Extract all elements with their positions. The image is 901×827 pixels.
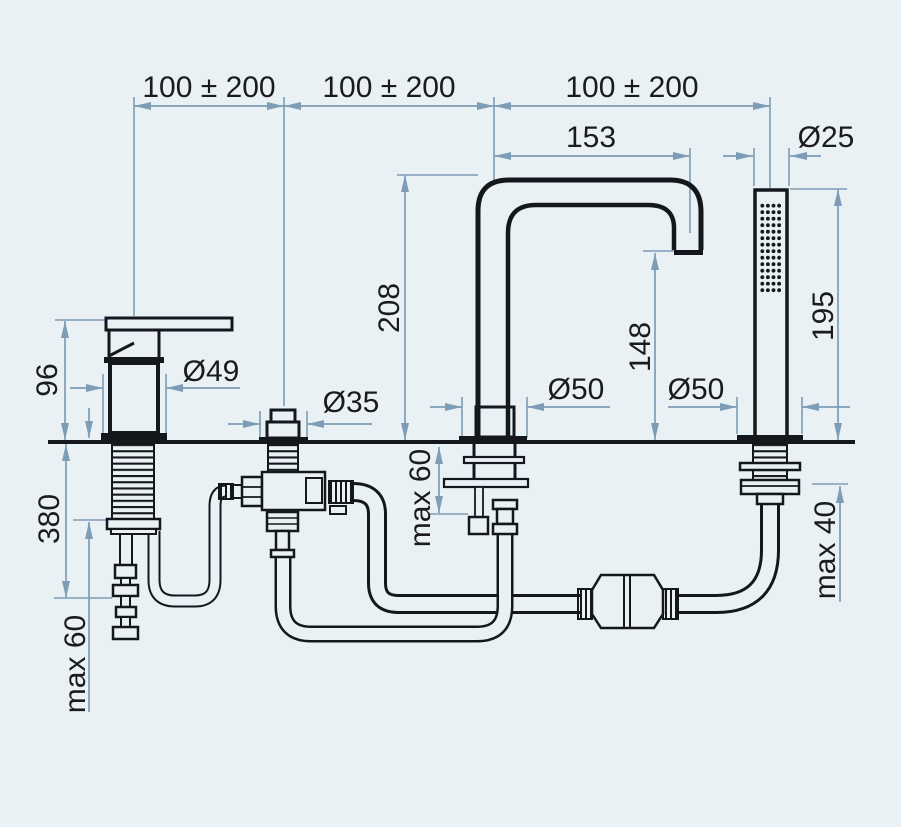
inline-connector [578, 575, 678, 628]
handshower-washer [740, 463, 800, 470]
mixer-body [110, 363, 158, 433]
handshower-spray-face [760, 203, 783, 294]
diverter-knob-base [267, 422, 299, 438]
mixer-lever [106, 318, 232, 330]
label-spacing-3: 100 ± 200 [565, 71, 698, 104]
mixer-mounting-nut [107, 519, 160, 529]
handshower [737, 190, 803, 504]
spout [444, 180, 703, 534]
diverter-knurled-connector [329, 481, 353, 503]
dimension-lines [54, 97, 850, 712]
label-spout-hole-diameter: Ø50 [548, 373, 605, 406]
label-under-deck-length: 380 [33, 494, 66, 544]
deck-line [48, 440, 855, 444]
installation-diagram: 100 ± 200 100 ± 200 100 ± 200 153 Ø25 20… [0, 0, 901, 827]
spout-bracket-bar-1 [464, 457, 524, 463]
spout-bracket-bar-2 [444, 479, 528, 487]
spout-tail-nut-2 [493, 524, 517, 534]
label-handshower-hole-diameter: Ø50 [668, 373, 725, 406]
mixer-fitting-1 [115, 565, 136, 578]
label-spout-outlet-height: 148 [624, 322, 657, 372]
handshower-mounting-nut [741, 480, 799, 494]
label-mixer-diameter: Ø49 [183, 355, 240, 388]
label-handshower-height: 195 [807, 291, 840, 341]
mixer-fitting-2 [113, 585, 138, 596]
label-max60-left: max 60 [59, 615, 92, 713]
spout-stud [475, 487, 483, 517]
label-spout-reach: 153 [566, 121, 616, 154]
spout-stud-nut [469, 517, 488, 534]
label-diverter-diameter: Ø35 [323, 386, 380, 419]
diverter [219, 410, 353, 557]
label-spout-height: 208 [373, 283, 406, 333]
label-spacing-1: 100 ± 200 [142, 71, 275, 104]
label-mixer-height: 96 [31, 363, 64, 396]
label-spacing-2: 100 ± 200 [322, 71, 455, 104]
diverter-bottom-band [271, 550, 294, 557]
diverter-body-tab [330, 506, 346, 514]
diverter-olive-fitting [219, 484, 233, 499]
spout-escutcheon [459, 436, 527, 443]
label-max40: max 40 [809, 501, 842, 599]
mixer-cartridge [109, 330, 159, 357]
mixer-nut-washer [111, 529, 156, 534]
product [48, 180, 855, 639]
connector-body [592, 575, 663, 628]
mixer-fitting-3 [116, 607, 136, 617]
diverter-threaded-shank [268, 445, 298, 472]
diverter-body-detail [306, 478, 322, 503]
connector-left-fitting [578, 589, 592, 619]
diverter-left-nut [242, 477, 262, 506]
mixer-base [101, 433, 167, 442]
diverter-bottom-hex [267, 512, 298, 531]
connector-right-fitting [663, 589, 678, 619]
spout-tailpiece [497, 509, 513, 524]
handshower-threads-lower [753, 470, 787, 480]
label-handshower-diameter: Ø25 [798, 121, 855, 154]
hose-diverter-to-spout [283, 532, 505, 634]
handshower-threads-upper [753, 444, 787, 464]
diverter-flange [259, 437, 308, 443]
hose-diverter-to-connector [353, 492, 580, 604]
mixer-end-nut [113, 627, 138, 639]
mixer-stud-3 [121, 617, 130, 627]
mixer-threaded-shank [112, 444, 154, 520]
spout-tail-nut-1 [493, 500, 517, 509]
handshower-hose-socket [757, 494, 783, 504]
label-max60-mid: max 60 [404, 449, 437, 547]
diverter-left-pipe [233, 485, 242, 498]
mixer-stud-2 [121, 596, 130, 607]
diverter-bottom-tube [276, 531, 289, 550]
technical-drawing-svg: 100 ± 200 100 ± 200 100 ± 200 153 Ø25 20… [0, 0, 901, 827]
handshower-holder-flange [737, 435, 803, 443]
mixer-supply-pipe [120, 534, 132, 565]
